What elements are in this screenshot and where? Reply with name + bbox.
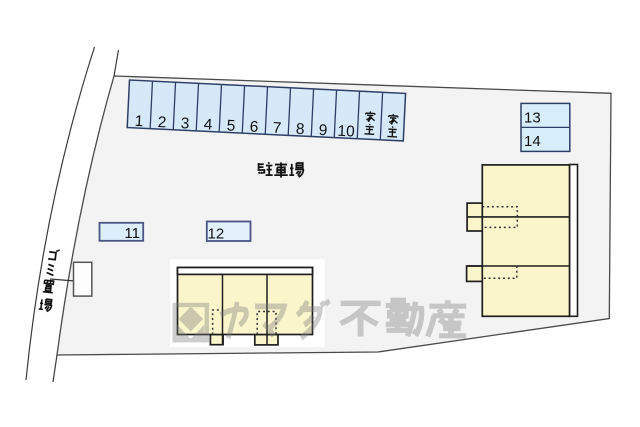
svg-text:1: 1 bbox=[134, 113, 143, 130]
svg-text:4: 4 bbox=[203, 116, 213, 133]
svg-text:9: 9 bbox=[318, 122, 327, 139]
svg-text:11: 11 bbox=[124, 225, 140, 242]
svg-text:10: 10 bbox=[337, 123, 355, 141]
svg-text:14: 14 bbox=[524, 133, 541, 150]
svg-text:12: 12 bbox=[208, 226, 225, 243]
svg-text:7: 7 bbox=[272, 120, 281, 137]
svg-text:3: 3 bbox=[180, 115, 189, 132]
svg-text:8: 8 bbox=[295, 121, 304, 138]
svg-text:5: 5 bbox=[226, 117, 235, 134]
svg-text:2: 2 bbox=[157, 114, 166, 131]
svg-text:6: 6 bbox=[249, 118, 258, 135]
svg-text:13: 13 bbox=[524, 110, 541, 127]
